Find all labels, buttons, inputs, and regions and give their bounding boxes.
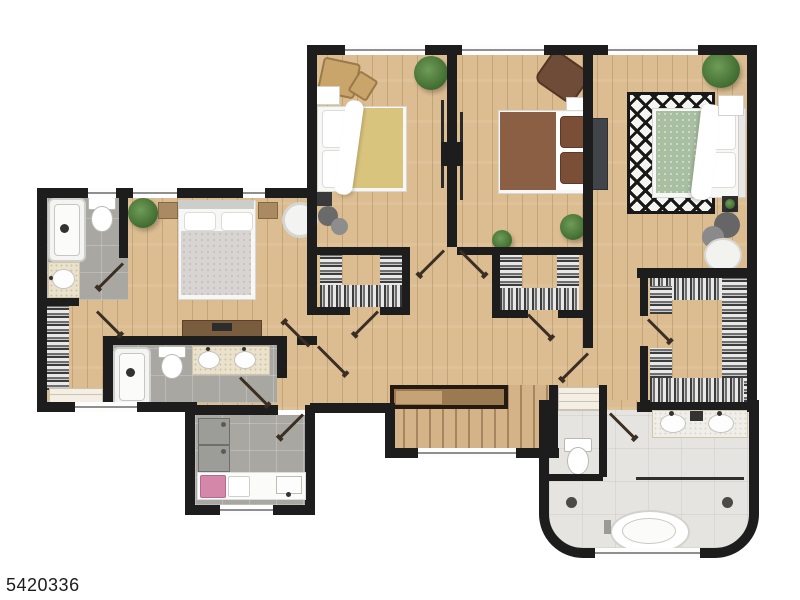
wall-segment [185, 405, 195, 515]
window [418, 448, 516, 458]
window [345, 45, 425, 55]
stair-landing [396, 391, 442, 404]
clothes-rack [500, 288, 579, 310]
window [243, 188, 265, 198]
plant-icon [414, 56, 448, 90]
nightstand [158, 202, 178, 219]
toilet [88, 197, 114, 231]
laundry-basket-white [228, 476, 250, 497]
window [595, 548, 700, 558]
plant-icon [702, 52, 740, 88]
sconce-icon [722, 497, 733, 508]
toilet [158, 346, 184, 378]
wall-segment [103, 336, 277, 345]
wall-segment [492, 247, 587, 255]
sink [52, 269, 75, 289]
wall-segment [37, 188, 317, 198]
wall-segment [119, 192, 128, 258]
wall-segment [402, 247, 410, 315]
wall-segment [312, 307, 350, 315]
faucet-icon [717, 411, 722, 416]
wall-segment [583, 55, 593, 348]
sink [708, 414, 734, 433]
laundry-basket-pink [200, 475, 226, 498]
sink [660, 414, 686, 433]
faucet-icon [669, 411, 674, 416]
wall-segment [310, 403, 395, 413]
clothes-rack [47, 304, 69, 390]
wall-segment [549, 385, 558, 458]
bed-4-headboard [178, 200, 254, 209]
clothes-rack [650, 378, 744, 402]
tv-console [592, 118, 608, 190]
bed-2-duvet [500, 112, 558, 190]
nightstand [316, 86, 340, 105]
plant-icon [725, 199, 735, 209]
bed-4-duvet [181, 231, 251, 295]
linen-shelves [558, 387, 601, 411]
window [75, 402, 137, 412]
pouf [331, 218, 348, 235]
nightstand [258, 202, 278, 219]
window [133, 188, 177, 198]
clothes-rack [650, 286, 672, 314]
wall-segment [307, 45, 317, 315]
wall-segment [492, 310, 528, 318]
towel-bar [636, 477, 744, 480]
vanity-accessory [690, 411, 703, 421]
wall-segment [312, 247, 410, 255]
clothes-rack [320, 285, 402, 307]
faucet-icon [49, 276, 53, 280]
wall-segment [37, 298, 79, 306]
window [220, 505, 273, 515]
toilet [564, 438, 590, 474]
floor-plan: 5420336 [0, 0, 800, 600]
plant-icon [128, 198, 158, 228]
shower [113, 347, 151, 407]
door-hardware [441, 142, 463, 166]
wall-segment [103, 336, 113, 406]
tub-faucet-icon [604, 520, 611, 534]
wall-segment [747, 45, 757, 412]
wall-segment [599, 385, 607, 477]
shower-head-icon [126, 368, 135, 377]
tv-icon [212, 323, 232, 331]
washer [198, 418, 230, 445]
faucet-icon [242, 347, 246, 351]
pillow [221, 212, 253, 231]
faucet-icon [286, 492, 291, 497]
bed-3-headboard [738, 108, 746, 198]
wall-segment [277, 336, 287, 378]
window [462, 45, 544, 55]
clothes-rack [650, 348, 672, 378]
wall-segment [380, 307, 410, 315]
sconce-icon [566, 497, 577, 508]
nightstand [718, 95, 744, 116]
sink [234, 351, 256, 369]
nightstand-dark [315, 192, 332, 206]
window [88, 188, 116, 198]
wall-segment [305, 405, 315, 515]
wall-segment [637, 268, 749, 278]
wall-segment [549, 474, 603, 481]
window [608, 45, 698, 55]
shower-head-icon [60, 224, 69, 233]
pillow [184, 212, 216, 231]
dryer [198, 445, 230, 472]
wall-segment [492, 247, 500, 318]
listing-id-text: 5420336 [6, 575, 80, 596]
round-table [704, 238, 742, 272]
tub-interior [622, 518, 676, 544]
sink [198, 351, 220, 369]
faucet-icon [206, 347, 210, 351]
